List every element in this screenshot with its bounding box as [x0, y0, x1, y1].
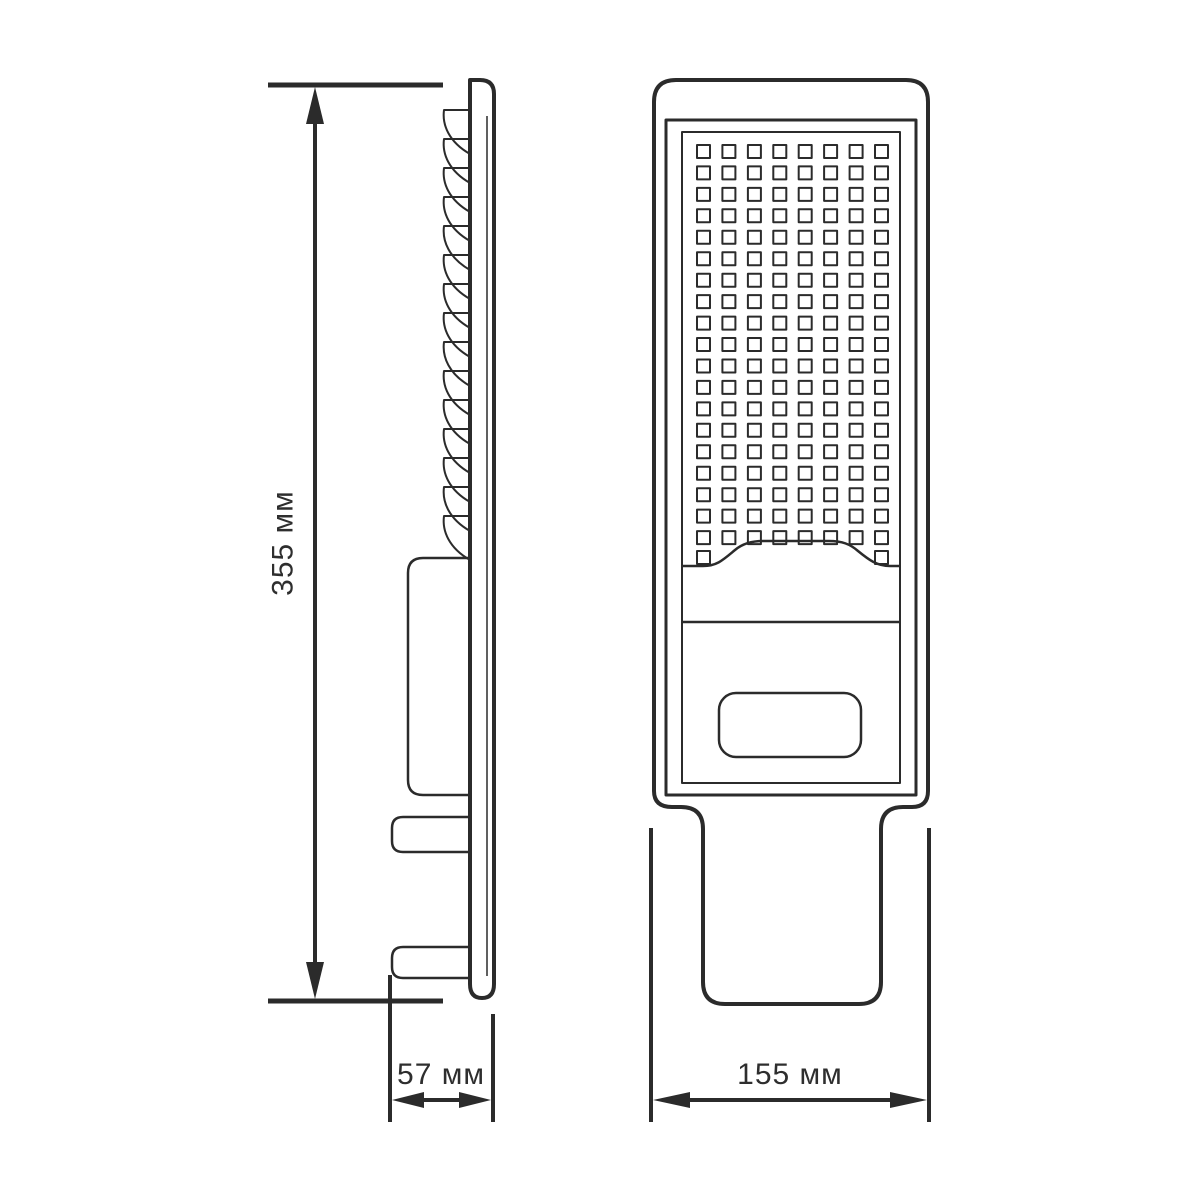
heatsink-fins: [444, 110, 470, 560]
depth-dimension-label: 57 мм: [397, 1058, 485, 1091]
driver-housing: [408, 558, 470, 795]
heatsink-fin: [444, 110, 470, 154]
arrowhead-right-icon: [459, 1092, 491, 1108]
arrowhead-left-icon: [653, 1092, 690, 1108]
front-view: 155 мм: [651, 80, 929, 1122]
mounting-tab-bottom: [392, 947, 470, 978]
arrowhead-up-icon: [306, 87, 324, 124]
arrowhead-down-icon: [306, 962, 324, 999]
arrowhead-right-icon: [890, 1092, 927, 1108]
height-dimension: 355 мм: [267, 85, 444, 1001]
side-view: 355 мм 57 мм: [267, 80, 495, 1122]
mounting-tab-top: [392, 817, 470, 852]
technical-drawing-page: 355 мм 57 мм 155 мм: [0, 0, 1200, 1200]
width-dimension-label: 155 мм: [737, 1058, 843, 1091]
drawing-canvas: 355 мм 57 мм 155 мм: [0, 0, 1200, 1200]
height-dimension-label: 355 мм: [267, 490, 300, 596]
arrowhead-left-icon: [392, 1092, 424, 1108]
back-plate: [470, 80, 494, 998]
